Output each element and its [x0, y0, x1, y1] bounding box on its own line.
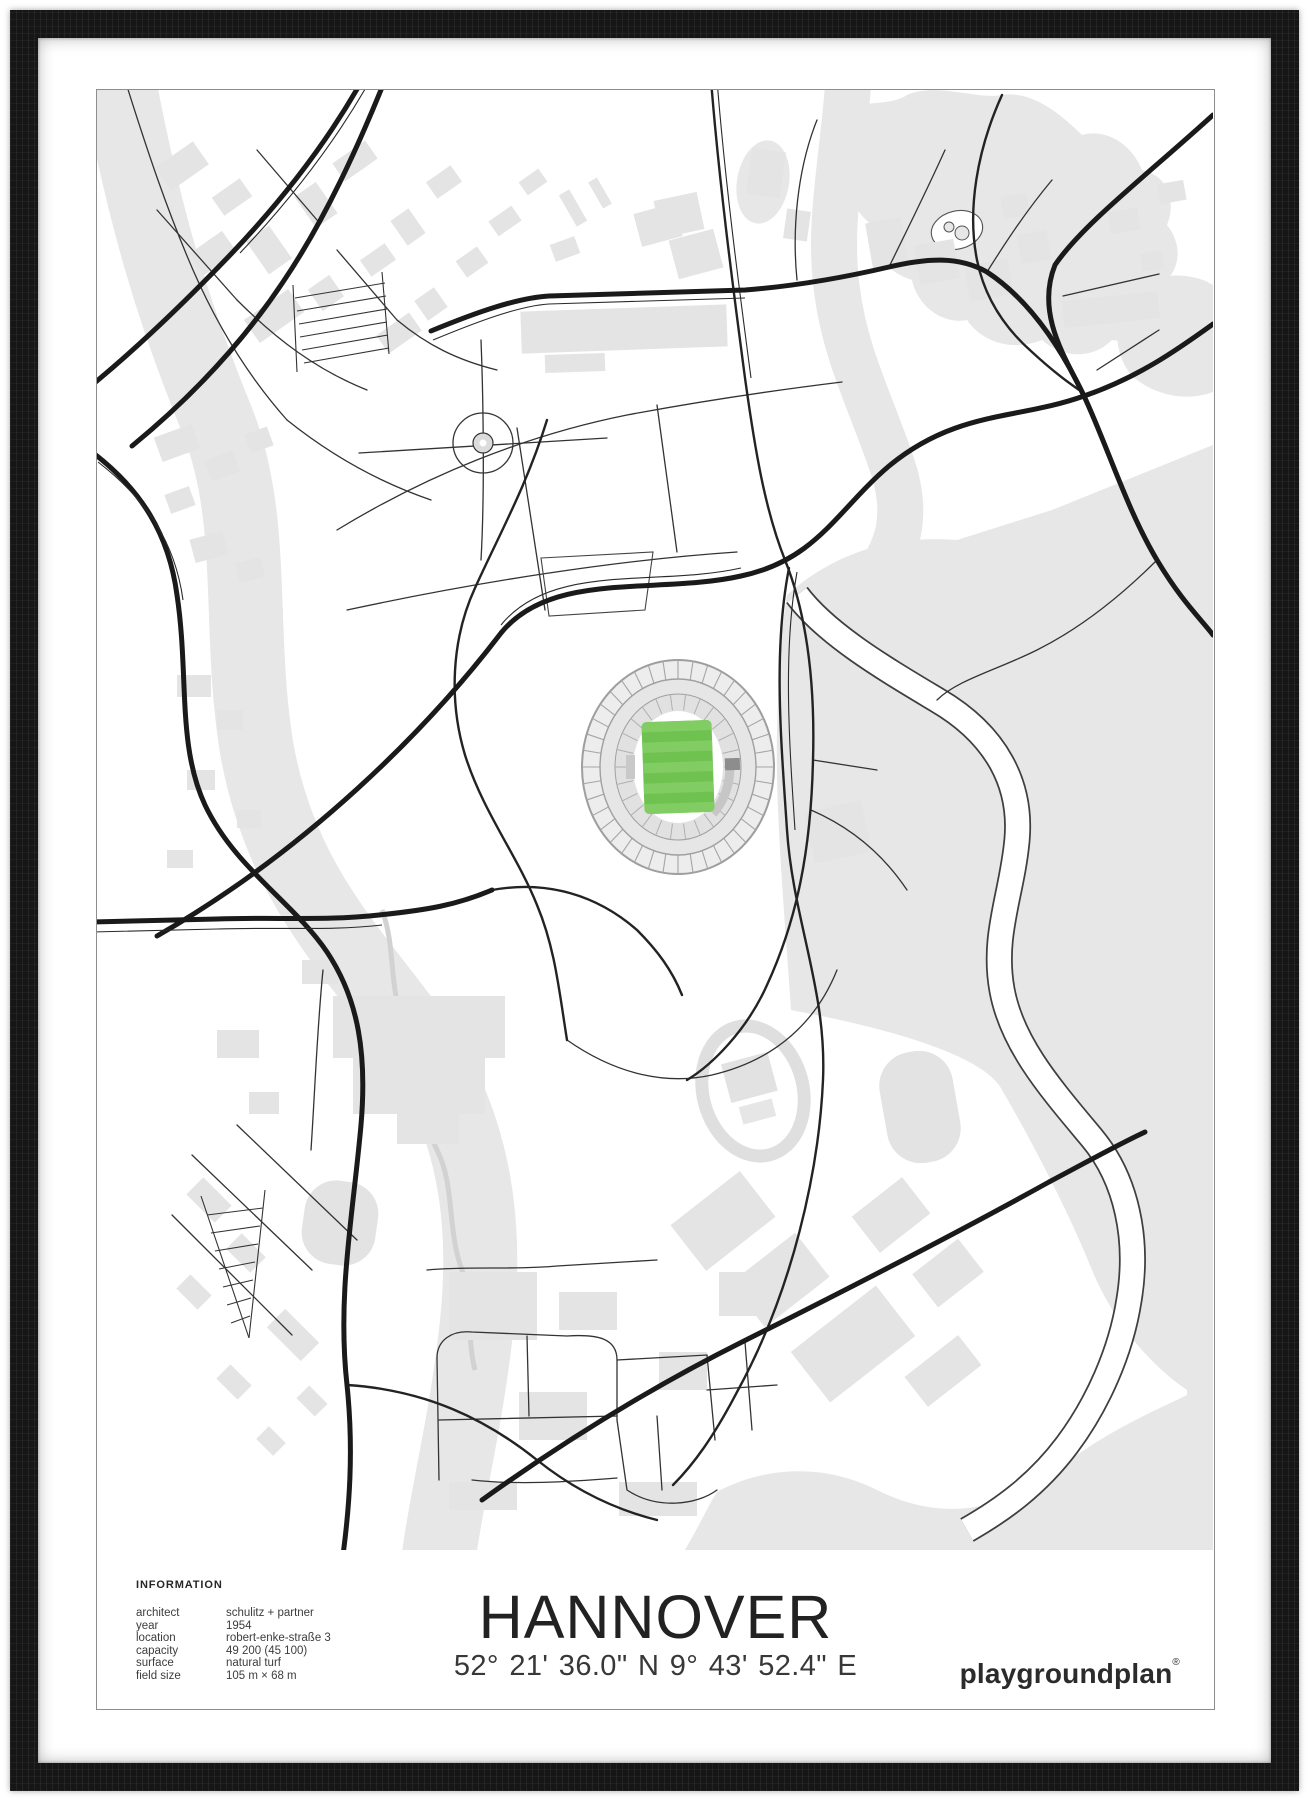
- poster-title: HANNOVER: [97, 1582, 1214, 1652]
- poster: INFORMATION architectschulitz + partner …: [38, 38, 1271, 1763]
- stadium-stand-block: [725, 758, 740, 771]
- stadium: [582, 660, 774, 874]
- players-tunnel: [626, 755, 635, 779]
- brand-logo: playgroundplan®: [960, 1657, 1180, 1690]
- brand-text: playgroundplan: [960, 1658, 1173, 1689]
- stadium-map: [97, 90, 1213, 1550]
- allotment-hatch: [293, 272, 389, 372]
- registered-mark: ®: [1172, 1657, 1180, 1668]
- poster-frame: INFORMATION architectschulitz + partner …: [10, 10, 1299, 1791]
- athletics-track: [688, 1014, 819, 1167]
- poster-content-box: INFORMATION architectschulitz + partner …: [96, 89, 1215, 1710]
- sports-field-round-2: [874, 1045, 966, 1168]
